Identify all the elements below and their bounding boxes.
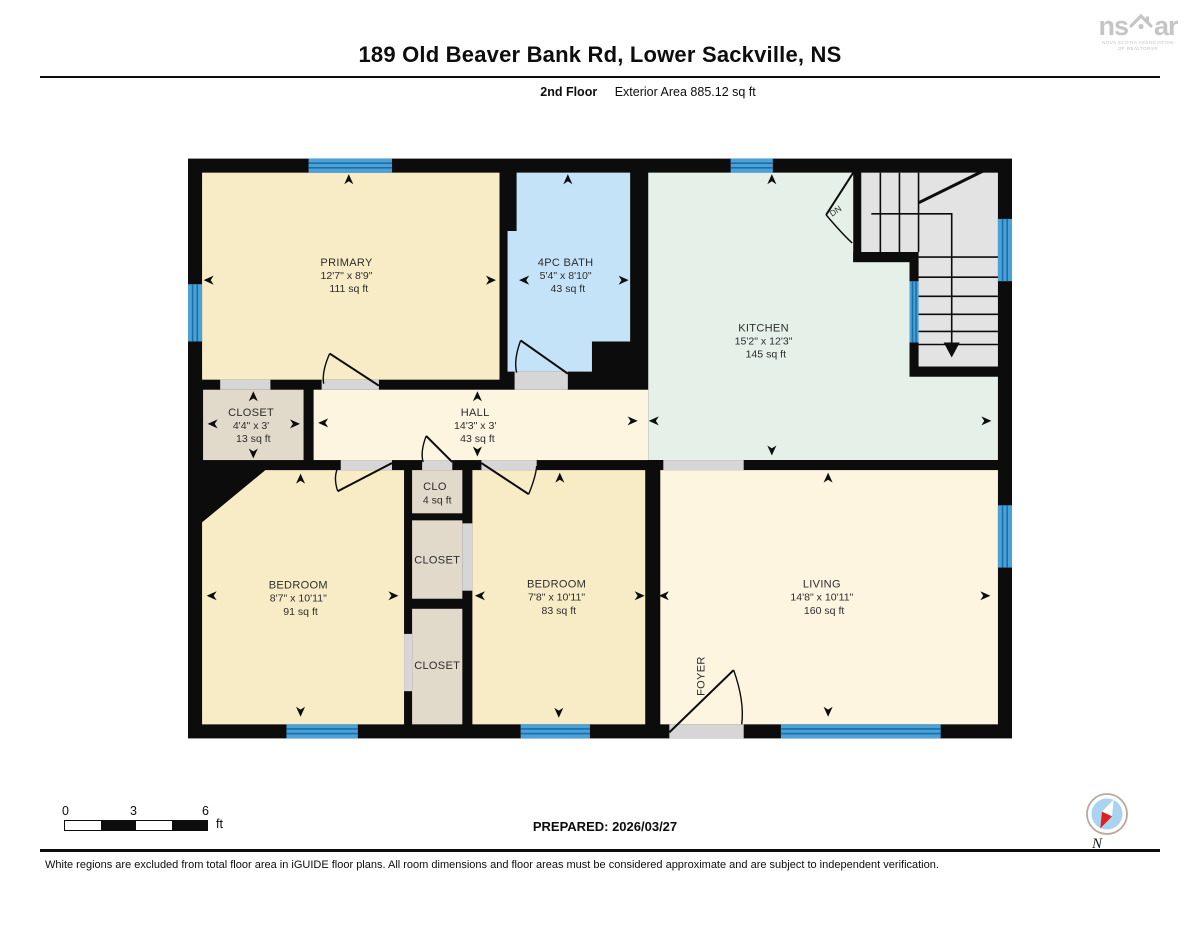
window [521,724,590,738]
floor-name: 2nd Floor [540,85,597,99]
scale-tick-6: 6 [202,804,209,818]
nsar-logo: ns ar NOVA SCOTIA ASSOCIATION OF REALTOR… [1092,13,1184,51]
house-icon [1128,13,1154,37]
closet-bottom-label: CLOSET [414,660,460,672]
window [781,724,941,738]
window [188,284,202,341]
window [286,724,357,738]
scale-tick-0: 0 [62,804,69,818]
window [731,159,773,173]
window [998,219,1012,281]
foyer-label: FOYER [696,656,708,696]
exterior-area: Exterior Area 885.12 sq ft [615,85,756,99]
header-divider [40,76,1160,78]
window [910,281,919,342]
nsar-logo-word: ns ar [1092,13,1184,37]
scale-tick-3: 3 [130,804,137,818]
hall-label: HALL 14'3" x 3' 43 sq ft [454,402,501,445]
nsar-logo-left: ns [1098,15,1128,37]
floor-plan: PRIMARY 12'7" x 8'9" 111 sq ft 4PC BATH … [188,158,1012,739]
footer-divider [40,849,1160,852]
floor-subtitle: 2nd Floor Exterior Area 885.12 sq ft [48,85,1200,99]
closet-mid-label: CLOSET [414,555,460,567]
disclaimer-text: White regions are excluded from total fl… [45,859,1170,871]
window [998,505,1012,567]
nsar-logo-tagline: NOVA SCOTIA ASSOCIATION OF REALTORS® [1092,40,1184,51]
window [309,159,392,173]
clo-label: CLO 4 sq ft [423,476,452,506]
prepared-date: PREPARED: 2026/03/27 [5,819,1200,834]
page-title: 189 Old Beaver Bank Rd, Lower Sackville,… [0,42,1200,68]
nsar-logo-right: ar [1154,15,1178,37]
